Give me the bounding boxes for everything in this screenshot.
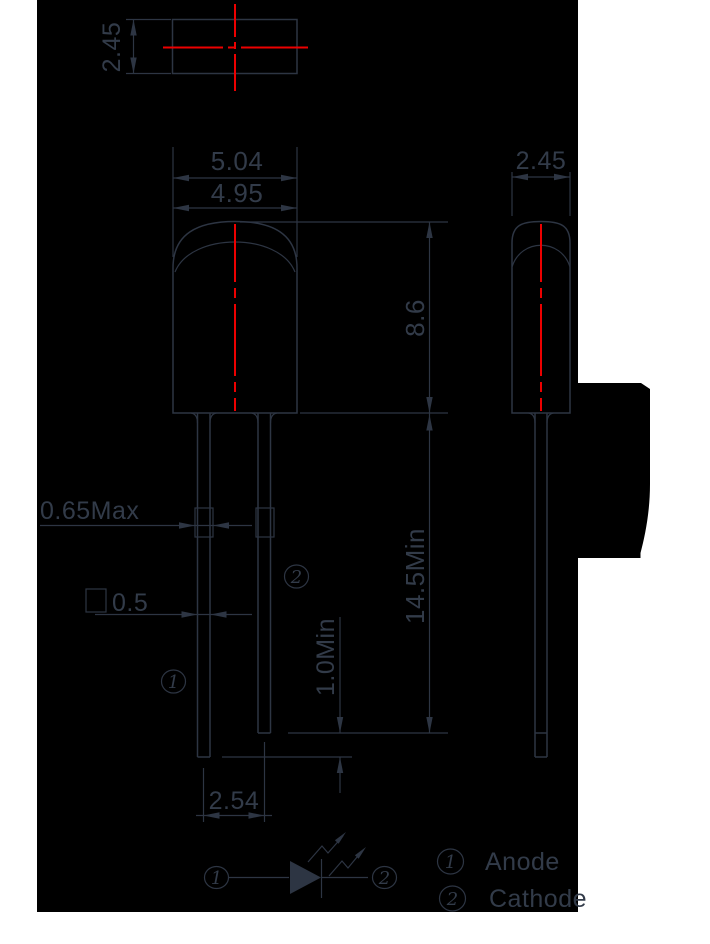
dim-label-lead-tip-offset: 1.0Min <box>312 618 340 696</box>
dim-label-top-height: 2.45 <box>98 22 126 73</box>
legend-cathode-number: 2 <box>446 889 458 910</box>
dim-label-side-depth: 2.45 <box>516 147 567 175</box>
dim-label-front-body-height: 8.6 <box>400 299 430 337</box>
dimension-drawing-svg: 2.45 5.04 4.95 <box>0 0 710 944</box>
pin2-number: 2 <box>290 567 302 588</box>
dim-label-front-width-outer: 5.04 <box>211 146 264 176</box>
dim-label-front-lead-length: 14.5Min <box>400 528 430 624</box>
symbol-pin2-number: 2 <box>378 868 390 889</box>
led-datasheet-drawing: 2.45 5.04 4.95 <box>0 0 710 944</box>
pin1-number: 1 <box>168 672 179 693</box>
dim-label-lead-pitch: 2.54 <box>209 787 260 815</box>
legend-anode-label: Anode <box>485 848 560 876</box>
dim-label-front-width-inner: 4.95 <box>211 178 264 208</box>
dim-label-lead-kink-width: 0.65Max <box>40 497 139 525</box>
dim-label-lead-square-width: 0.5 <box>112 589 148 617</box>
legend-anode-number: 1 <box>445 852 456 873</box>
symbol-pin1-number: 1 <box>211 868 222 889</box>
drawing-background-panel <box>37 0 578 912</box>
legend-cathode-label: Cathode <box>489 885 587 913</box>
legend-anode-row: 1 Anode <box>438 848 560 876</box>
watermark-blob <box>578 383 650 558</box>
